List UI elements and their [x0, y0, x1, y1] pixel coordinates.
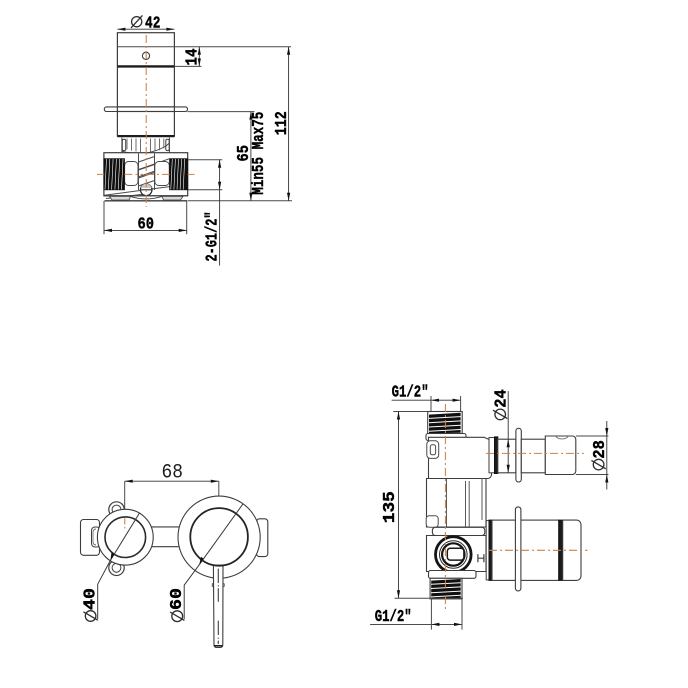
svg-text:14: 14: [184, 49, 203, 66]
svg-text:60: 60: [138, 215, 155, 234]
svg-text:24: 24: [493, 389, 512, 408]
svg-text:2-G1/2": 2-G1/2": [204, 212, 223, 262]
svg-text:G1/2": G1/2": [392, 383, 429, 402]
svg-text:135: 135: [381, 491, 400, 523]
svg-text:42: 42: [145, 14, 160, 33]
svg-text:60: 60: [168, 588, 187, 610]
svg-text:40: 40: [81, 588, 100, 610]
svg-text:112: 112: [273, 111, 292, 135]
svg-text:Min55 Max75: Min55 Max75: [250, 112, 269, 195]
svg-text:68: 68: [162, 461, 184, 484]
svg-text:28: 28: [591, 440, 610, 459]
